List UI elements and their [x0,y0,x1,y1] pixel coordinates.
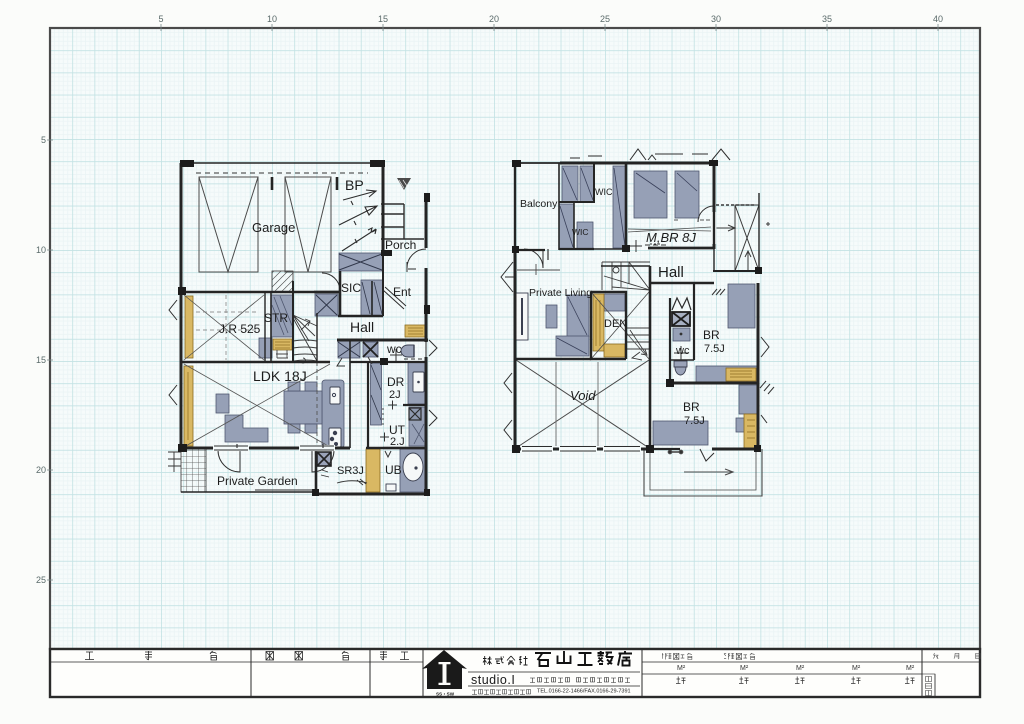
svg-text:WIC: WIC [572,227,589,237]
svg-text:5: 5 [41,135,46,145]
svg-text:Hall: Hall [658,264,684,281]
svg-text:UT: UT [389,423,406,437]
svg-text:Private Living: Private Living [529,287,592,299]
svg-text:TEL.0166-22-1466/FAX.0166-29-7: TEL.0166-22-1466/FAX.0166-29-7391 [537,689,631,695]
svg-text:20: 20 [489,14,499,24]
svg-text:7.5J: 7.5J [704,343,725,355]
svg-text:DEN: DEN [604,318,627,330]
svg-text:35: 35 [822,14,832,24]
svg-text:5: 5 [158,14,163,24]
svg-text:BR: BR [703,328,720,342]
svg-text:Porch: Porch [385,238,416,252]
svg-text:2J: 2J [389,389,401,401]
svg-text:SS・SW: SS・SW [436,692,455,697]
svg-text:Hall: Hall [350,319,374,335]
svg-text:2.J: 2.J [390,436,405,448]
svg-text:Private Garden: Private Garden [217,474,298,488]
svg-text:M²: M² [740,665,749,672]
svg-text:20: 20 [36,465,46,475]
svg-text:15: 15 [378,14,388,24]
svg-text:SR3J: SR3J [337,465,364,477]
svg-text:30: 30 [711,14,721,24]
svg-text:BP: BP [345,177,364,193]
svg-text:M²: M² [852,665,861,672]
svg-text:studio.I: studio.I [471,673,515,687]
svg-text:M²: M² [677,665,686,672]
svg-text:10: 10 [267,14,277,24]
svg-text:BR: BR [683,400,700,414]
svg-text:Ent: Ent [393,285,412,299]
svg-text:LDK 18J: LDK 18J [253,368,307,384]
svg-text:J.R 525: J.R 525 [219,322,261,336]
svg-text:STR: STR [264,311,288,325]
svg-text:Void: Void [570,388,596,403]
svg-text:40: 40 [933,14,943,24]
svg-text:25: 25 [600,14,610,24]
svg-text:WIC: WIC [595,187,613,197]
svg-text:Garage: Garage [252,220,295,235]
svg-text:SIC: SIC [341,281,361,295]
svg-text:7.5J: 7.5J [684,415,705,427]
svg-text:25: 25 [36,575,46,585]
svg-text:15: 15 [36,355,46,365]
svg-text:wc: wc [386,342,402,356]
svg-text:M,BR 8J: M,BR 8J [646,230,696,245]
svg-text:DR: DR [387,375,405,389]
svg-text:wc: wc [675,345,690,357]
svg-text:UB: UB [385,463,402,477]
svg-text:M²: M² [796,665,805,672]
svg-text:10: 10 [36,245,46,255]
svg-text:M²: M² [906,665,915,672]
svg-text:Balcony: Balcony [520,198,558,210]
